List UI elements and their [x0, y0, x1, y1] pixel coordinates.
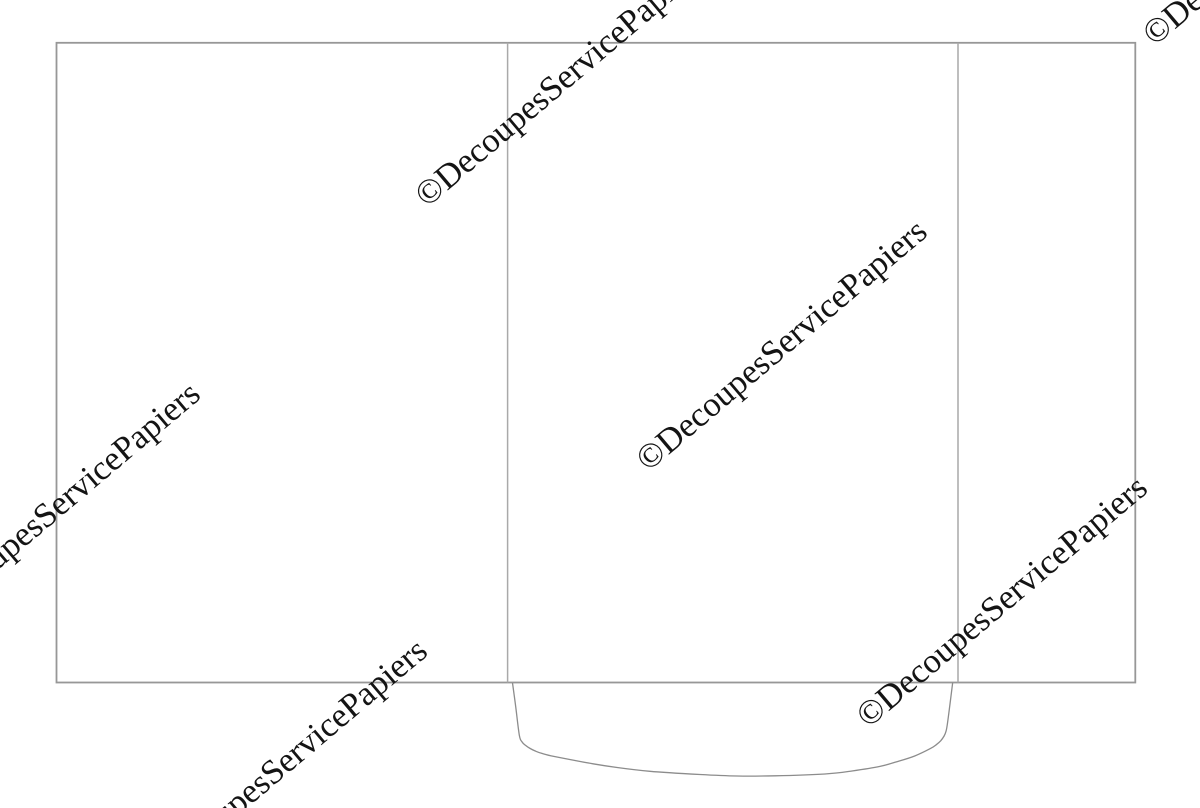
svg-text:©DecoupesServicePapiers: ©DecoupesServicePapiers: [629, 212, 935, 479]
svg-text:©DecoupesServicePapiers: ©DecoupesServicePapiers: [408, 0, 714, 214]
svg-text:©DecoupesServicePapiers: ©DecoupesServicePapiers: [0, 374, 207, 641]
svg-text:©DecoupesServicePapiers: ©DecoupesServicePapiers: [1135, 0, 1200, 53]
svg-text:©DecoupesServicePapiers: ©DecoupesServicePapiers: [129, 631, 435, 808]
svg-text:©DecoupesServicePapiers: ©DecoupesServicePapiers: [849, 468, 1155, 735]
